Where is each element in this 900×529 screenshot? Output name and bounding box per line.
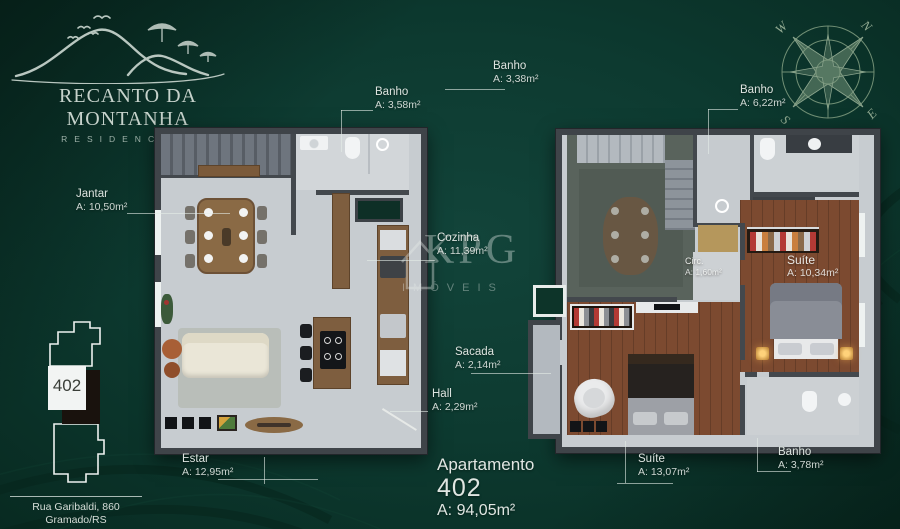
bed xyxy=(770,283,842,369)
console-table xyxy=(198,165,260,177)
storage-cubes xyxy=(570,421,610,433)
shower-glass xyxy=(368,134,370,174)
brand-title: RECANTO DA MONTANHA xyxy=(2,85,254,131)
stairs-side-flight xyxy=(665,160,695,230)
window xyxy=(155,282,161,327)
room-label-banho-lower-right: Banho A: 3,78m² xyxy=(778,446,824,472)
bed xyxy=(628,354,694,435)
room-label-suite-right: Suíte A: 10,34m² xyxy=(787,254,838,280)
shaft-void xyxy=(355,198,403,222)
apartment-title-block: Apartamento 402 A: 94,05m² xyxy=(437,454,534,520)
room-label-estar: Estar A: 12,95m² xyxy=(182,453,233,479)
leader-line xyxy=(445,89,505,90)
picture-frame xyxy=(217,415,237,431)
coffee-table xyxy=(245,417,303,433)
void-over-living xyxy=(567,135,695,300)
room-label-sacada: Sacada A: 2,14m² xyxy=(455,346,501,372)
vanity-counter xyxy=(786,135,852,153)
nightstand-lamp xyxy=(756,347,769,360)
leader-line xyxy=(341,110,342,152)
stairs-top-flight xyxy=(577,135,665,163)
toilet xyxy=(802,391,817,412)
room-label-jantar: Jantar A: 10,50m² xyxy=(76,188,127,214)
room-label-banho-left: Banho A: 3,58m² xyxy=(375,86,421,112)
stool xyxy=(300,324,312,338)
pouf xyxy=(164,362,180,378)
room-label-cozinha: Cozinha A: 11,39m² xyxy=(437,232,488,258)
address-city: Gramado/RS xyxy=(0,514,152,527)
wardrobe xyxy=(570,304,634,330)
leader-line xyxy=(625,441,626,483)
watermark-subtitle: IMÓVEIS xyxy=(402,282,504,294)
dining-chair xyxy=(185,254,195,268)
interior-wall xyxy=(740,223,745,260)
leader-line xyxy=(264,457,265,484)
keyplan-unit-number: 402 xyxy=(48,376,86,396)
dining-table xyxy=(197,198,255,274)
toilet xyxy=(760,138,775,160)
apartment-area: A: 94,05m² xyxy=(437,502,534,520)
room-label-hall: Hall A: 2,29m² xyxy=(432,388,478,414)
mountain-logo-icon xyxy=(2,6,254,84)
shower-head xyxy=(376,138,389,151)
right-floorplan xyxy=(556,129,880,453)
brand-logo: RECANTO DA MONTANHA RESIDENCIAL xyxy=(2,6,254,144)
kitchen-island xyxy=(313,317,351,389)
address-divider xyxy=(10,496,142,497)
leader-line xyxy=(708,109,738,110)
shower-head xyxy=(715,199,729,213)
tv-console xyxy=(636,302,698,313)
light-well-box xyxy=(533,285,566,317)
interior-wall xyxy=(740,300,745,360)
leader-line xyxy=(617,483,673,484)
dining-chair xyxy=(185,230,195,244)
address-street: Rua Garibaldi, 860 xyxy=(0,501,152,514)
address-block: Rua Garibaldi, 860 Gramado/RS xyxy=(0,501,152,527)
dishwasher xyxy=(380,350,406,376)
leader-line xyxy=(341,110,373,111)
stool xyxy=(300,368,312,382)
toilet xyxy=(345,137,360,159)
wardrobe xyxy=(747,227,819,253)
window xyxy=(859,213,865,257)
bathroom-sink xyxy=(300,136,328,150)
pouf xyxy=(162,339,182,359)
sideboard xyxy=(165,415,239,431)
pedestal-sink xyxy=(838,393,851,406)
left-floorplan xyxy=(155,128,427,454)
compass-rose: N E S W xyxy=(766,10,890,134)
sofa xyxy=(182,333,269,378)
window xyxy=(859,303,865,347)
room-label-banho-top: Banho A: 3,38m² xyxy=(493,60,539,86)
window xyxy=(155,210,161,255)
leader-line xyxy=(708,109,709,154)
dining-chair xyxy=(257,230,267,244)
leader-line xyxy=(127,213,230,214)
leader-line xyxy=(218,479,318,480)
leader-line xyxy=(471,373,551,374)
apartment-number: 402 xyxy=(437,475,534,502)
balcony xyxy=(528,320,560,439)
room-label-suite-lower: Suíte A: 13,07m² xyxy=(638,453,689,479)
leader-line xyxy=(367,260,435,261)
plant xyxy=(161,294,173,324)
bathroom-wall xyxy=(745,372,757,377)
leader-line xyxy=(390,411,428,412)
leader-line xyxy=(757,438,758,472)
dining-table-below xyxy=(603,197,658,275)
dining-chair xyxy=(257,206,267,220)
nightstand-lamp xyxy=(840,347,853,360)
room-label-circ: Circ. A: 1,60m² xyxy=(685,256,722,278)
stool xyxy=(300,346,312,360)
interior-wall xyxy=(740,385,745,435)
kitchen-sink xyxy=(380,314,406,338)
floorplan-sheet: RECANTO DA MONTANHA RESIDENCIAL N E S W xyxy=(0,0,900,529)
apartment-label: Apartamento xyxy=(437,454,534,475)
dining-chair xyxy=(257,254,267,268)
bathroom-wall xyxy=(769,372,859,377)
bathroom-wall xyxy=(316,190,409,195)
room-label-banho-upper-right: Banho A: 6,22m² xyxy=(740,84,786,110)
landing-mat xyxy=(698,225,738,252)
cooktop xyxy=(320,331,346,369)
building-keyplan xyxy=(28,314,148,500)
kitchen-counter-mid xyxy=(332,193,350,289)
